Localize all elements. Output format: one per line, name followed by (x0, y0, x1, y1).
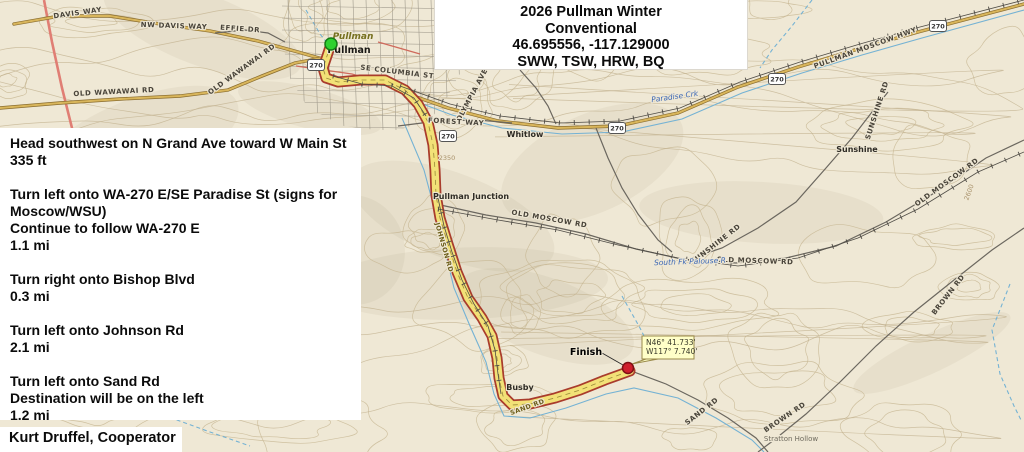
map-label: 2350 (439, 154, 456, 162)
title-line: 2026 Pullman Winter (435, 4, 747, 21)
title-line: SWW, TSW, HRW, BQ (435, 54, 747, 71)
finish-marker (623, 363, 634, 374)
title-line: Conventional (435, 21, 747, 38)
direction-step: Turn left onto Sand RdDestination will b… (10, 373, 361, 424)
title-line: 46.695556, -117.129000 (435, 37, 747, 54)
map-label: Sunshine (836, 145, 878, 154)
start-marker (325, 38, 337, 50)
direction-line: 1.2 mi (10, 407, 361, 424)
direction-step: Turn left onto WA-270 E/SE Paradise St (… (10, 186, 361, 254)
direction-line: Turn right onto Bishop Blvd (10, 271, 361, 288)
map-label: Pullman Junction (433, 192, 509, 201)
svg-text:270: 270 (931, 23, 945, 31)
direction-line: Destination will be on the left (10, 390, 361, 407)
highway-shield-270: 270 (609, 123, 626, 134)
svg-text:270: 270 (770, 76, 784, 84)
direction-line: Moscow/WSU) (10, 203, 361, 220)
cooperator-label: Kurt Druffel, Cooperator (0, 427, 182, 452)
direction-line: 2.1 mi (10, 339, 361, 356)
direction-line: Turn left onto WA-270 E/SE Paradise St (… (10, 186, 361, 203)
svg-text:270: 270 (441, 133, 455, 141)
highway-shield-270: 270 (308, 60, 325, 71)
highway-shield-270: 270 (769, 74, 786, 85)
svg-text:270: 270 (309, 62, 323, 70)
direction-line: Turn left onto Johnson Rd (10, 322, 361, 339)
callout-line2: W117° 7.740' (646, 347, 697, 356)
direction-line: 1.1 mi (10, 237, 361, 254)
direction-line: Head southwest on N Grand Ave toward W M… (10, 135, 361, 152)
map-label: Stratton Hollow (764, 435, 819, 443)
direction-step: Turn right onto Bishop Blvd0.3 mi (10, 271, 361, 305)
finish-label: Finish (570, 347, 602, 358)
callout-line1: N46° 41.733' (646, 338, 696, 347)
direction-line: 335 ft (10, 152, 361, 169)
event-title-box: 2026 Pullman WinterConventional46.695556… (434, 0, 748, 70)
direction-step: Turn left onto Johnson Rd2.1 mi (10, 322, 361, 356)
map-label: Busby (506, 383, 534, 392)
highway-shield-270: 270 (440, 131, 457, 142)
direction-line: Continue to follow WA-270 E (10, 220, 361, 237)
route-map-screenshot: DAVIS WAYNW DAVIS WAYEFFIE DROLD WAWAWAI… (0, 0, 1024, 452)
directions-panel: Head southwest on N Grand Ave toward W M… (0, 128, 361, 420)
direction-line: Turn left onto Sand Rd (10, 373, 361, 390)
map-label: Pullman (333, 32, 374, 42)
svg-text:270: 270 (610, 125, 624, 133)
highway-shield-270: 270 (930, 21, 947, 32)
direction-line: 0.3 mi (10, 288, 361, 305)
direction-step: Head southwest on N Grand Ave toward W M… (10, 135, 361, 169)
map-label: Whitlow (507, 130, 544, 139)
